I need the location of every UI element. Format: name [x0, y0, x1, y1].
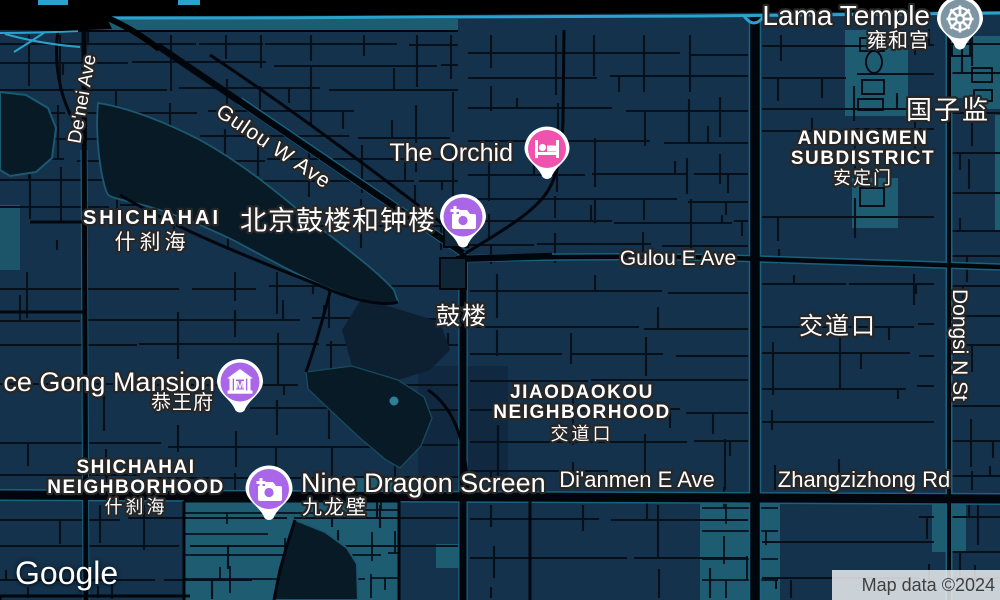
- svg-text:M: M: [235, 380, 244, 392]
